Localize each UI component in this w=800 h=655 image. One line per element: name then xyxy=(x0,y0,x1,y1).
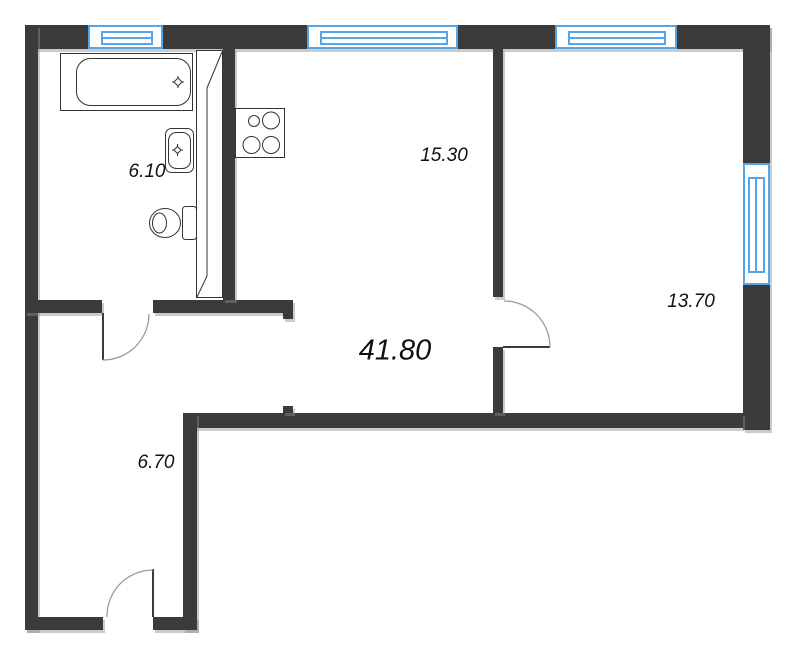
total-area-label: 41.80 xyxy=(359,335,432,368)
bathroom-shaft-fold-lines xyxy=(196,50,223,298)
wall-interior-lower xyxy=(493,347,503,413)
bedroom-area-label: 13.70 xyxy=(667,291,715,313)
top-window-2-icon xyxy=(307,25,458,49)
floor-plan: 41.80 6.10 15.30 13.70 6.70 xyxy=(0,0,800,655)
top-window-3-icon xyxy=(555,25,677,49)
wall-hallway-east xyxy=(183,413,197,630)
hallway-area-label: 6.70 xyxy=(138,452,175,474)
wall-stub-lower xyxy=(283,313,293,319)
top-window-1-icon xyxy=(88,25,163,49)
entrance-door-arc xyxy=(105,569,155,619)
bathroom-area-label: 6.10 xyxy=(129,161,166,183)
bathtub-icon xyxy=(60,53,193,111)
wall-long-south xyxy=(183,413,743,428)
stove-icon xyxy=(235,108,285,158)
wall-interior-upper xyxy=(493,48,503,297)
wall-bathroom-east xyxy=(223,48,235,300)
wall-hallway-bottom-right xyxy=(153,617,197,630)
kitchen-living-area-label: 15.30 xyxy=(420,145,468,167)
bathroom-door-arc xyxy=(102,313,152,363)
bedroom-door-arc xyxy=(503,299,553,349)
right-window-icon xyxy=(743,163,770,285)
wall-bathroom-south-right xyxy=(153,300,293,313)
sink-icon xyxy=(165,128,194,173)
wall-left xyxy=(25,25,38,630)
wall-stub-upper xyxy=(283,406,293,413)
wall-bathroom-south-left xyxy=(25,300,102,313)
wall-hallway-bottom-left xyxy=(25,617,103,630)
toilet-icon xyxy=(148,205,198,241)
